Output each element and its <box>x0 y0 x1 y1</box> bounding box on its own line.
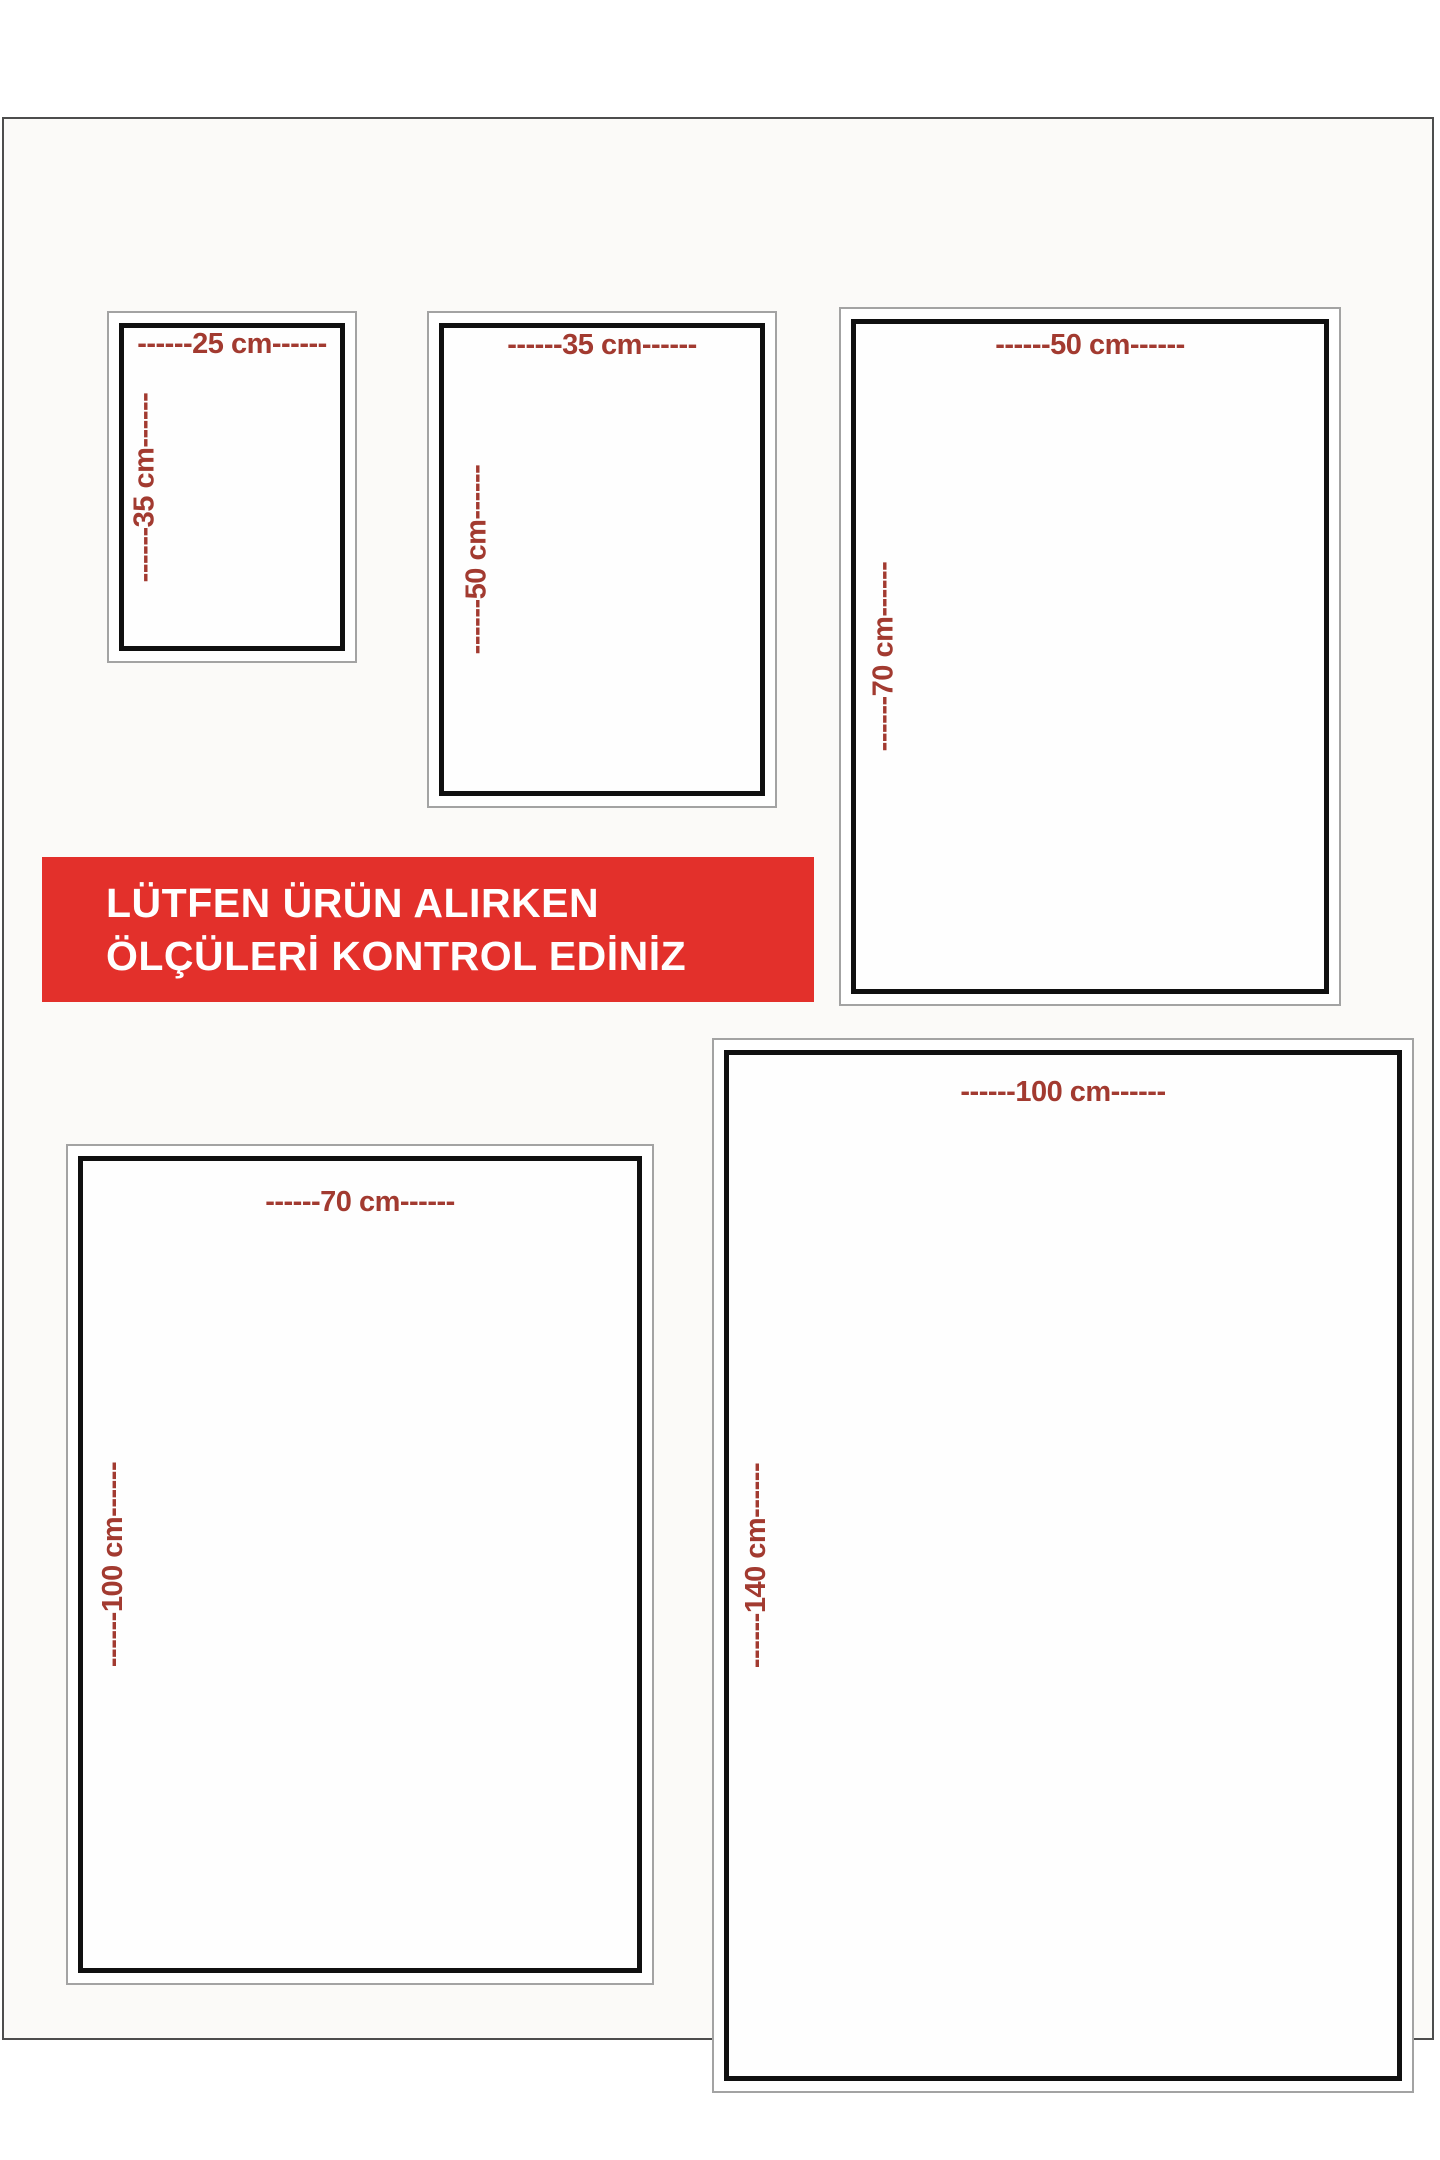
width-dimension-label-50cm: ------50 cm------ <box>841 329 1339 362</box>
warning-banner-line1: LÜTFEN ÜRÜN ALIRKEN <box>106 877 814 930</box>
size-box-70x100: ------70 cm------ ------100 cm------ <box>66 1144 654 1985</box>
size-box-70x100-black-border <box>78 1156 642 1973</box>
size-box-25x35: ------25 cm------ ------35 cm------ <box>107 311 357 663</box>
size-box-35x50: ------35 cm------ ------50 cm------ <box>427 311 777 808</box>
width-dimension-label-100cm: ------100 cm------ <box>714 1076 1412 1109</box>
warning-banner-line2: ÖLÇÜLERİ KONTROL EDİNİZ <box>106 930 814 983</box>
size-box-100x140-black-border <box>724 1050 1402 2081</box>
size-guide-image: { "banner": { "line1": "LÜTFEN ÜRÜN ALIR… <box>0 0 1440 2160</box>
width-dimension-label-70cm: ------70 cm------ <box>68 1186 652 1219</box>
width-dimension-label-25cm: ------25 cm------ <box>109 328 355 361</box>
size-box-50x70-black-border <box>851 319 1329 994</box>
size-box-100x140: ------100 cm------ ------140 cm------ <box>712 1038 1414 2093</box>
content-frame: ------25 cm------ ------35 cm------ ----… <box>2 117 1434 2040</box>
width-dimension-label-35cm: ------35 cm------ <box>429 329 775 362</box>
warning-banner: LÜTFEN ÜRÜN ALIRKEN ÖLÇÜLERİ KONTROL EDİ… <box>42 857 814 1002</box>
size-box-50x70: ------50 cm------ ------70 cm------ <box>839 307 1341 1006</box>
